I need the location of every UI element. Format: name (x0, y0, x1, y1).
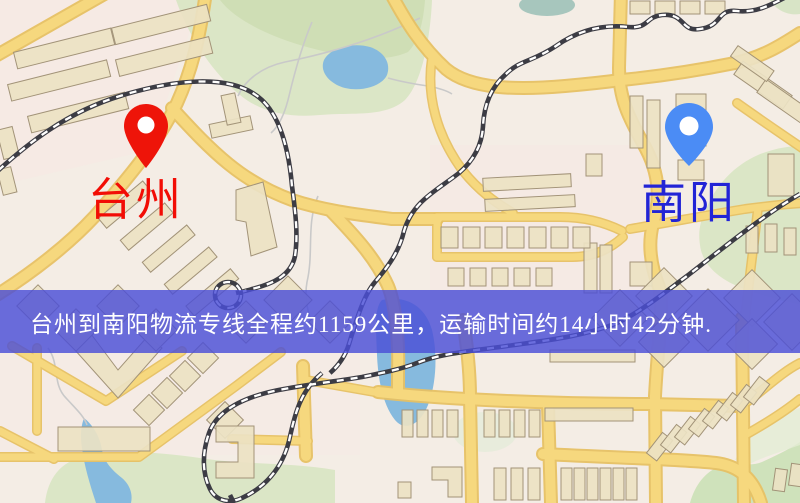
origin-city-label: 台州 (88, 178, 184, 223)
destination-map-pin[interactable] (663, 102, 715, 168)
origin-map-pin[interactable] (122, 103, 170, 171)
route-info-banner: 台州到南阳物流专线全程约1159公里，运输时间约14小时42分钟. (0, 290, 800, 353)
destination-city-label: 南阳 (641, 181, 737, 226)
route-info-text: 台州到南阳物流专线全程约1159公里，运输时间约14小时42分钟. (30, 305, 712, 339)
map-screenshot: 台州 南阳 台州到南阳物流专线全程约1159公里，运输时间约14小时42分钟. (0, 0, 800, 503)
map-background (0, 0, 800, 503)
pin-icon (124, 104, 168, 168)
